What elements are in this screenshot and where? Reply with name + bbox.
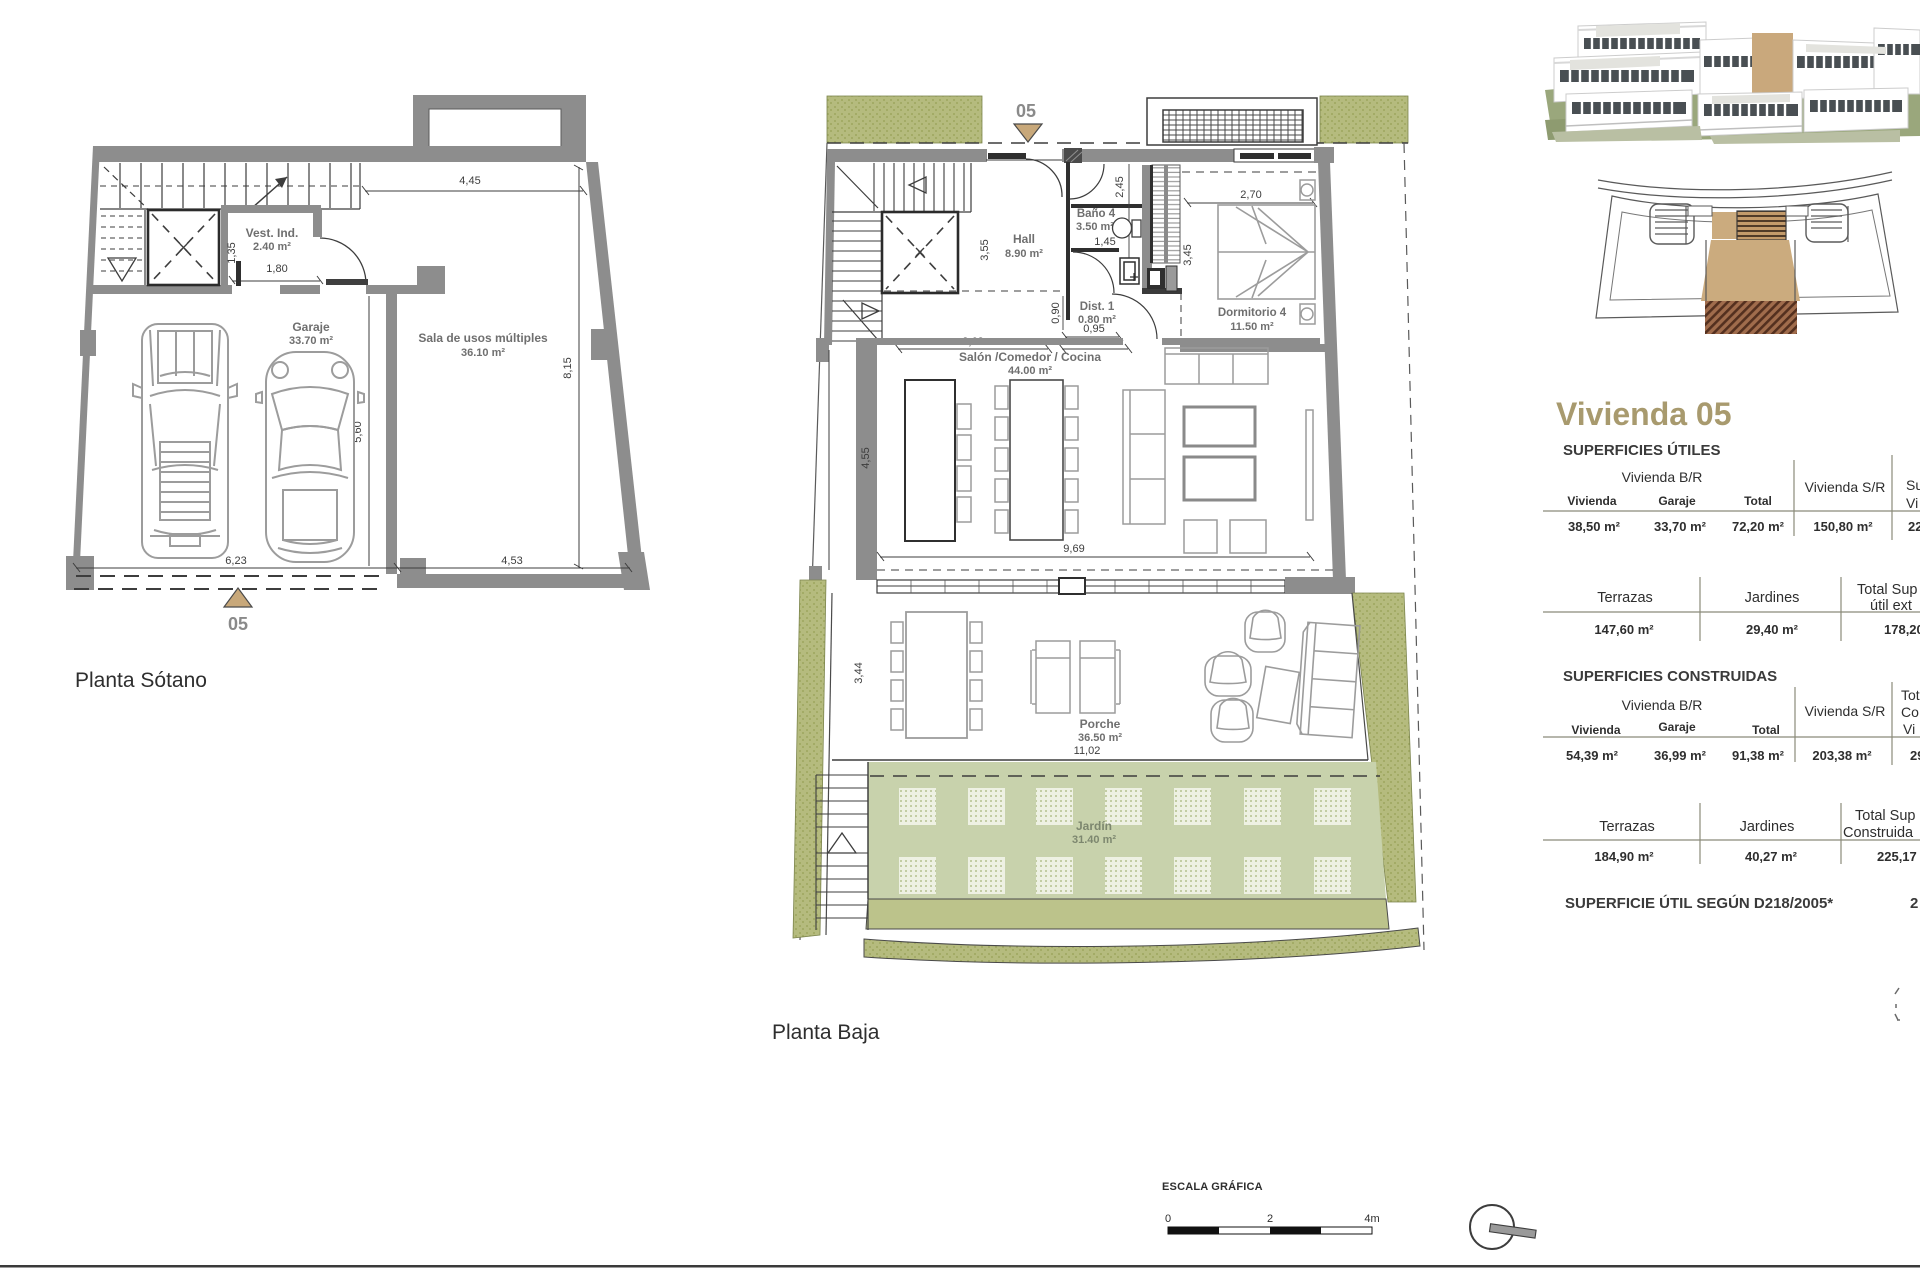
svg-text:Jardines: Jardines: [1745, 590, 1800, 606]
svg-text:Tot: Tot: [1901, 687, 1920, 703]
svg-text:Jardín: Jardín: [1076, 819, 1112, 833]
svg-text:44.00 m²: 44.00 m²: [1008, 365, 1052, 377]
svg-text:29,40 m²: 29,40 m²: [1746, 622, 1799, 637]
svg-text:Planta Baja: Planta Baja: [772, 1021, 880, 1044]
svg-text:2,45: 2,45: [1114, 176, 1126, 197]
svg-text:4,45: 4,45: [459, 175, 480, 187]
svg-text:147,60 m²: 147,60 m²: [1594, 622, 1654, 637]
svg-text:Co: Co: [1901, 704, 1919, 720]
svg-text:Vivienda 05: Vivienda 05: [1556, 396, 1732, 432]
svg-text:54,39 m²: 54,39 m²: [1566, 748, 1619, 763]
svg-text:Salón /Comedor / Cocina: Salón /Comedor / Cocina: [959, 350, 1101, 364]
svg-text:3,55: 3,55: [979, 239, 991, 260]
svg-text:22: 22: [1908, 519, 1920, 534]
svg-text:2,70: 2,70: [1240, 189, 1261, 201]
svg-text:SUPERFICIES ÚTILES: SUPERFICIES ÚTILES: [1563, 441, 1721, 459]
svg-text:Garaje: Garaje: [292, 320, 330, 334]
svg-text:Porche: Porche: [1080, 717, 1121, 731]
svg-text:0,90: 0,90: [1050, 302, 1062, 323]
svg-text:Dormitorio 4: Dormitorio 4: [1218, 307, 1287, 319]
svg-text:Vivienda S/R: Vivienda S/R: [1805, 703, 1886, 719]
svg-text:Vivienda: Vivienda: [1571, 723, 1620, 737]
svg-text:91,38 m²: 91,38 m²: [1732, 748, 1785, 763]
svg-text:6,23: 6,23: [225, 555, 246, 567]
svg-text:3,44: 3,44: [853, 662, 865, 683]
svg-text:Terrazas: Terrazas: [1599, 819, 1655, 835]
svg-text:36,99 m²: 36,99 m²: [1654, 748, 1707, 763]
svg-text:2: 2: [1910, 895, 1918, 912]
svg-text:Vivienda B/R: Vivienda B/R: [1622, 469, 1703, 485]
svg-text:4,53: 4,53: [501, 555, 522, 567]
svg-text:4,55: 4,55: [860, 447, 872, 468]
svg-text:178,20: 178,20: [1884, 622, 1920, 637]
svg-text:Construida: Construida: [1843, 825, 1914, 841]
svg-text:72,20 m²: 72,20 m²: [1732, 519, 1785, 534]
svg-text:Baño 4: Baño 4: [1077, 208, 1116, 220]
svg-text:Total Sup: Total Sup: [1857, 582, 1917, 598]
svg-text:36.50 m²: 36.50 m²: [1078, 732, 1122, 744]
svg-text:2: 2: [1267, 1213, 1273, 1225]
svg-text:225,17: 225,17: [1877, 849, 1917, 864]
svg-text:4m: 4m: [1364, 1213, 1379, 1225]
svg-text:11.50 m²: 11.50 m²: [1230, 321, 1274, 333]
svg-text:Vest. Ind.: Vest. Ind.: [246, 226, 299, 240]
svg-text:3.50 m²: 3.50 m²: [1076, 221, 1114, 233]
svg-text:8.90 m²: 8.90 m²: [1005, 248, 1043, 260]
svg-text:Sala de usos múltiples: Sala de usos múltiples: [418, 331, 548, 345]
svg-text:Vi: Vi: [1906, 495, 1918, 511]
svg-text:2.40 m²: 2.40 m²: [253, 241, 291, 253]
svg-text:Jardines: Jardines: [1740, 819, 1795, 835]
svg-text:33,70 m²: 33,70 m²: [1654, 519, 1707, 534]
svg-text:05: 05: [1016, 101, 1036, 121]
svg-text:Vi: Vi: [1903, 721, 1915, 737]
svg-text:40,27 m²: 40,27 m²: [1745, 849, 1798, 864]
svg-text:0: 0: [1165, 1213, 1171, 1225]
svg-text:38,50 m²: 38,50 m²: [1568, 519, 1621, 534]
svg-text:Vivienda: Vivienda: [1567, 494, 1616, 508]
svg-text:Vivienda S/R: Vivienda S/R: [1805, 479, 1886, 495]
svg-text:Vivienda B/R: Vivienda B/R: [1622, 697, 1703, 713]
svg-text:150,80 m²: 150,80 m²: [1813, 519, 1873, 534]
svg-text:0,95: 0,95: [1083, 323, 1104, 335]
svg-text:Planta Sótano: Planta Sótano: [75, 669, 207, 692]
svg-text:Garaje: Garaje: [1658, 720, 1696, 734]
svg-text:Terrazas: Terrazas: [1597, 590, 1653, 606]
svg-text:8,15: 8,15: [562, 357, 574, 378]
svg-text:36.10 m²: 36.10 m²: [461, 347, 505, 359]
svg-text:29: 29: [1910, 748, 1920, 763]
svg-text:Su: Su: [1906, 477, 1920, 493]
svg-text:203,38 m²: 203,38 m²: [1812, 748, 1872, 763]
svg-text:Total: Total: [1744, 494, 1772, 508]
svg-text:ESCALA GRÁFICA: ESCALA GRÁFICA: [1162, 1180, 1263, 1193]
svg-text:Hall: Hall: [1013, 232, 1035, 246]
svg-text:SUPERFICIES CONSTRUIDAS: SUPERFICIES CONSTRUIDAS: [1563, 668, 1777, 685]
svg-text:31.40 m²: 31.40 m²: [1072, 834, 1116, 846]
svg-text:1,45: 1,45: [1094, 236, 1115, 248]
svg-text:9,69: 9,69: [1063, 543, 1084, 555]
svg-text:33.70 m²: 33.70 m²: [289, 335, 333, 347]
svg-text:3,45: 3,45: [1182, 244, 1194, 265]
svg-text:Dist. 1: Dist. 1: [1080, 301, 1115, 313]
svg-text:05: 05: [228, 614, 248, 634]
svg-text:1,35: 1,35: [226, 242, 238, 263]
svg-text:SUPERFICIE ÚTIL SEGÚN D218/200: SUPERFICIE ÚTIL SEGÚN D218/2005*: [1565, 894, 1833, 912]
svg-text:11,02: 11,02: [1074, 745, 1101, 757]
svg-text:184,90 m²: 184,90 m²: [1594, 849, 1654, 864]
svg-text:Total Sup: Total Sup: [1855, 808, 1915, 824]
svg-text:Garaje: Garaje: [1658, 494, 1696, 508]
svg-text:Total: Total: [1752, 723, 1780, 737]
svg-text:1,80: 1,80: [266, 263, 287, 275]
